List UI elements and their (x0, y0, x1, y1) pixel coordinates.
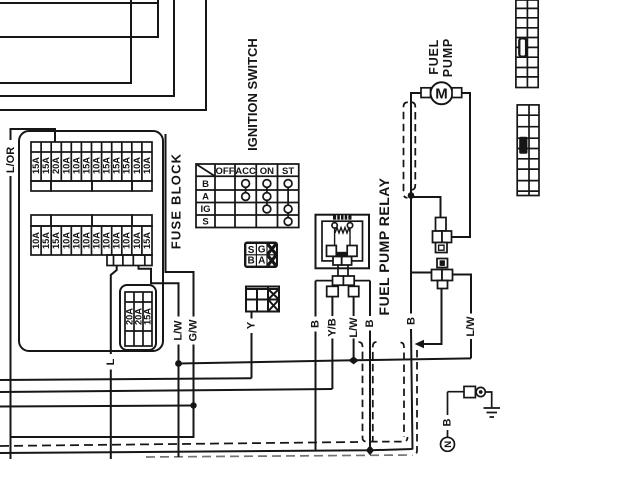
svg-text:L: L (105, 358, 117, 365)
svg-text:L/W: L/W (348, 317, 360, 338)
svg-text:M: M (435, 86, 448, 103)
svg-text:PUMP: PUMP (441, 38, 455, 77)
svg-text:IGNITION SWITCH: IGNITION SWITCH (245, 38, 260, 151)
svg-text:20A: 20A (51, 157, 61, 174)
svg-text:S: S (202, 216, 208, 227)
svg-text:10A: 10A (92, 232, 102, 249)
svg-text:L/OR: L/OR (5, 147, 17, 173)
svg-text:10A: 10A (31, 232, 41, 249)
svg-text:10A: 10A (71, 157, 81, 174)
svg-text:10A: 10A (142, 157, 152, 174)
svg-text:IG: IG (200, 204, 210, 215)
svg-text:B: B (247, 256, 254, 267)
svg-text:15A: 15A (31, 157, 41, 174)
svg-text:G: G (258, 244, 266, 255)
svg-text:10A: 10A (81, 232, 91, 249)
svg-text:Y/B: Y/B (327, 318, 339, 336)
svg-text:15A: 15A (41, 232, 51, 249)
svg-text:B: B (202, 179, 209, 190)
svg-text:10A: 10A (132, 232, 142, 249)
svg-text:10A: 10A (61, 232, 71, 249)
svg-text:ST: ST (282, 166, 294, 177)
svg-text:L/W: L/W (465, 316, 477, 337)
svg-text:N: N (443, 441, 454, 448)
svg-text:A: A (258, 256, 265, 267)
svg-text:B: B (310, 320, 322, 328)
svg-text:15A: 15A (122, 157, 132, 174)
svg-text:ACC: ACC (235, 166, 256, 177)
svg-text:10A: 10A (132, 157, 142, 174)
svg-text:10A: 10A (122, 232, 132, 249)
svg-text:15A: 15A (112, 157, 122, 174)
svg-text:10A: 10A (71, 232, 81, 249)
svg-text:FUEL PUMP RELAY: FUEL PUMP RELAY (376, 177, 392, 315)
svg-text:15A: 15A (41, 157, 51, 174)
svg-text:S: S (248, 245, 255, 256)
svg-text:B: B (442, 418, 454, 426)
svg-text:10A: 10A (61, 157, 71, 174)
svg-text:FUSE BLOCK: FUSE BLOCK (169, 153, 184, 250)
svg-text:A: A (202, 192, 209, 203)
svg-text:Y: Y (246, 321, 258, 329)
svg-text:B: B (406, 317, 418, 325)
svg-text:G/W: G/W (188, 319, 200, 342)
svg-text:FUEL: FUEL (427, 39, 441, 75)
svg-text:15A: 15A (81, 157, 91, 174)
svg-text:OFF: OFF (216, 166, 235, 177)
svg-text:15A: 15A (142, 232, 152, 249)
svg-text:10A: 10A (112, 232, 122, 249)
svg-text:L/W: L/W (173, 320, 185, 341)
svg-text:ON: ON (260, 166, 274, 177)
svg-text:B: B (364, 319, 376, 327)
svg-text:15A: 15A (143, 308, 153, 325)
svg-text:10A: 10A (102, 232, 112, 249)
svg-text:15A: 15A (51, 232, 61, 249)
svg-text:10A: 10A (92, 157, 102, 174)
svg-text:15A: 15A (102, 157, 112, 174)
